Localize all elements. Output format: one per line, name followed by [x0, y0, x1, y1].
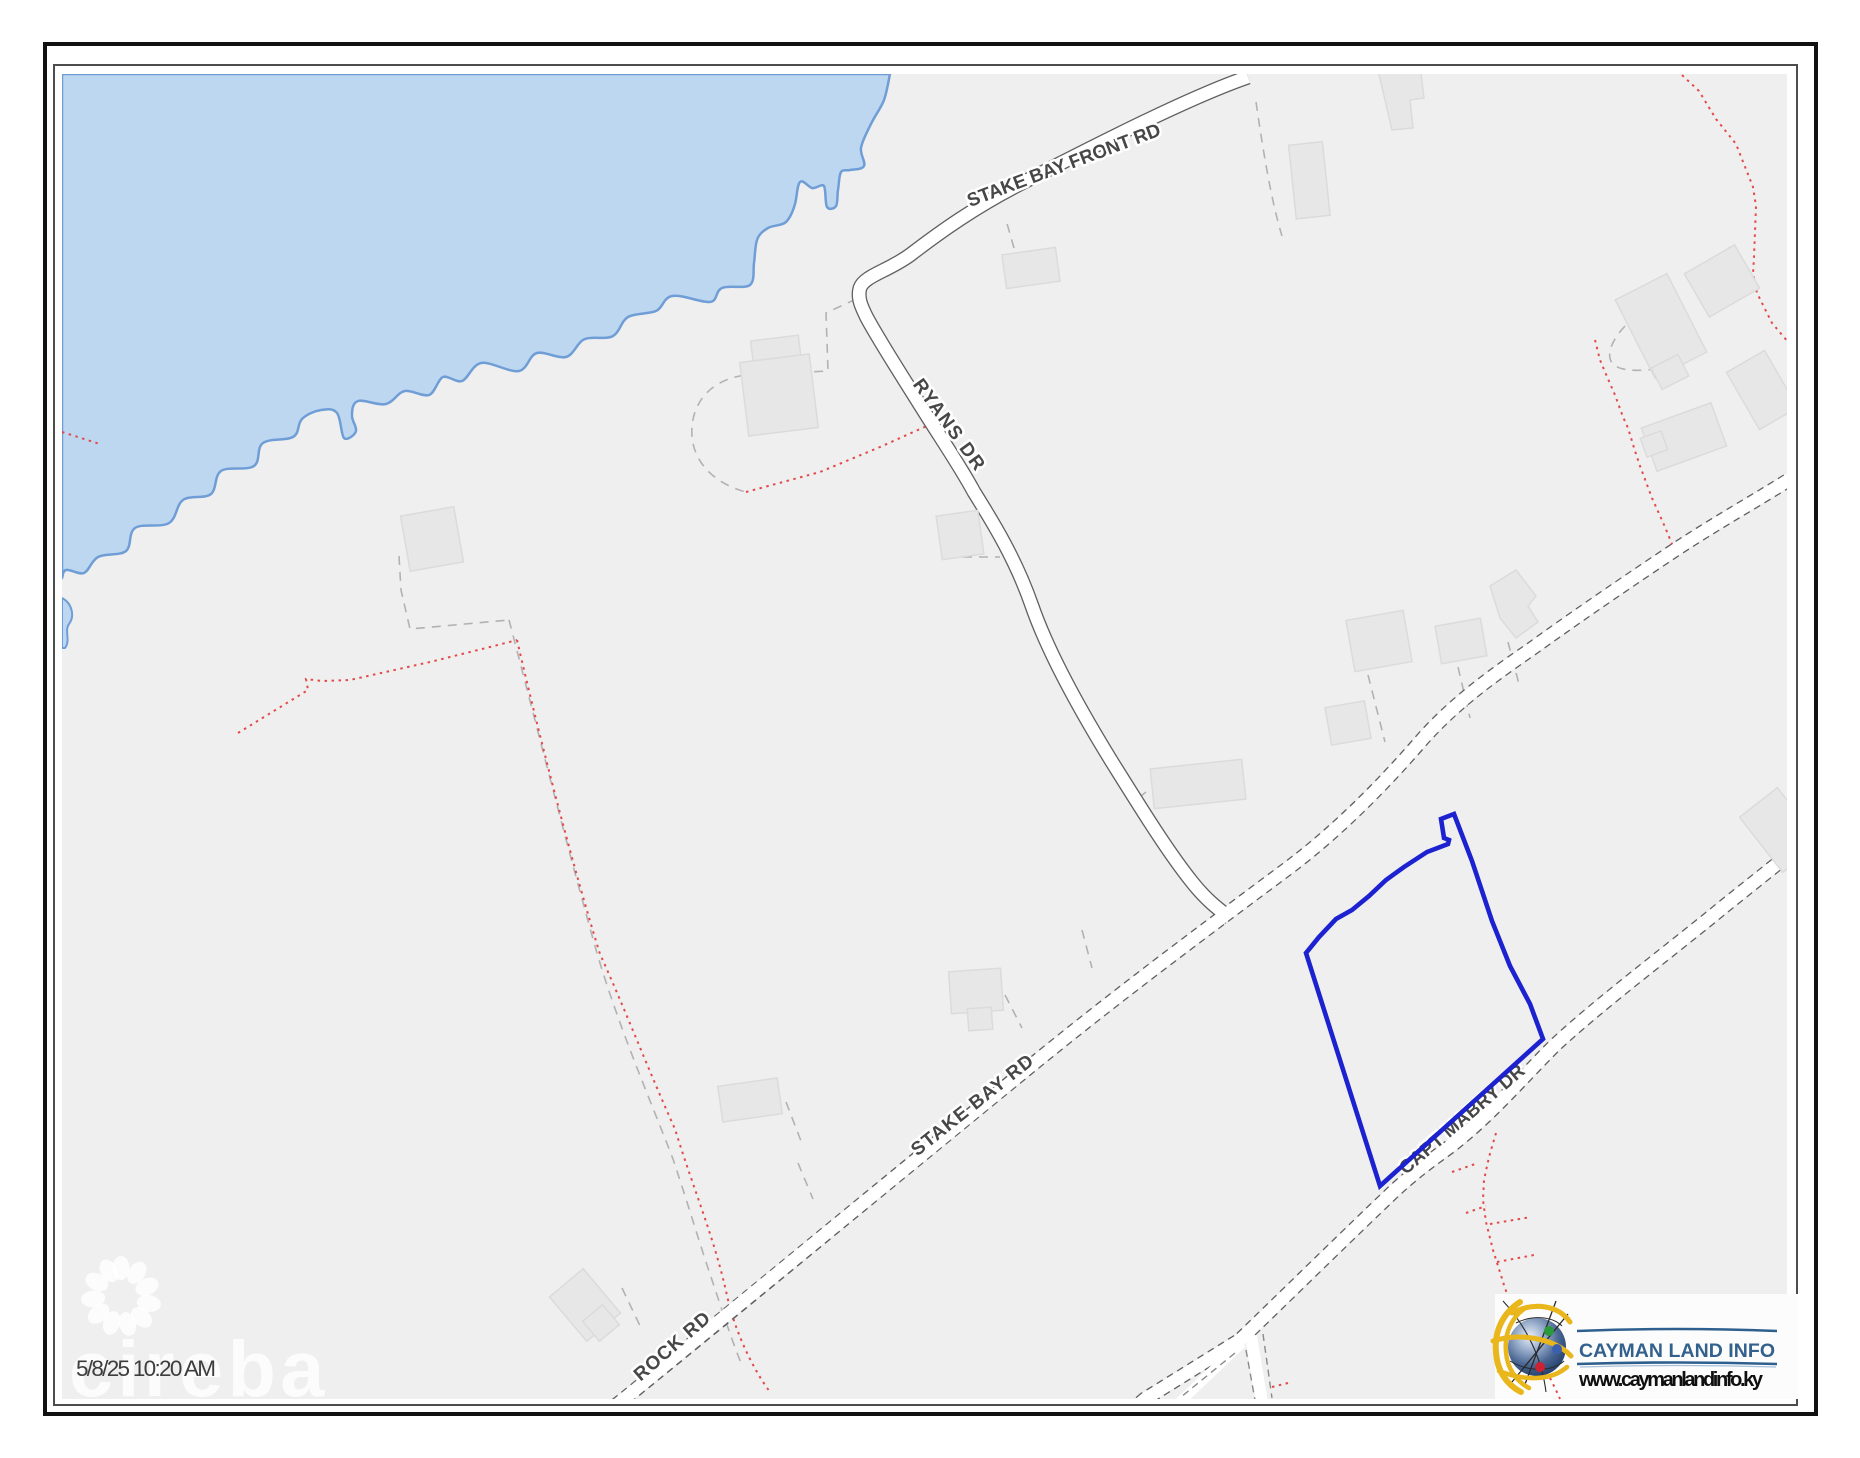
svg-text:5/8/25 10:20 AM: 5/8/25 10:20 AM	[76, 1356, 216, 1381]
svg-text:www.caymanlandinfo.ky: www.caymanlandinfo.ky	[1578, 1369, 1764, 1391]
svg-text:CAYMAN LAND INFO: CAYMAN LAND INFO	[1579, 1340, 1775, 1362]
